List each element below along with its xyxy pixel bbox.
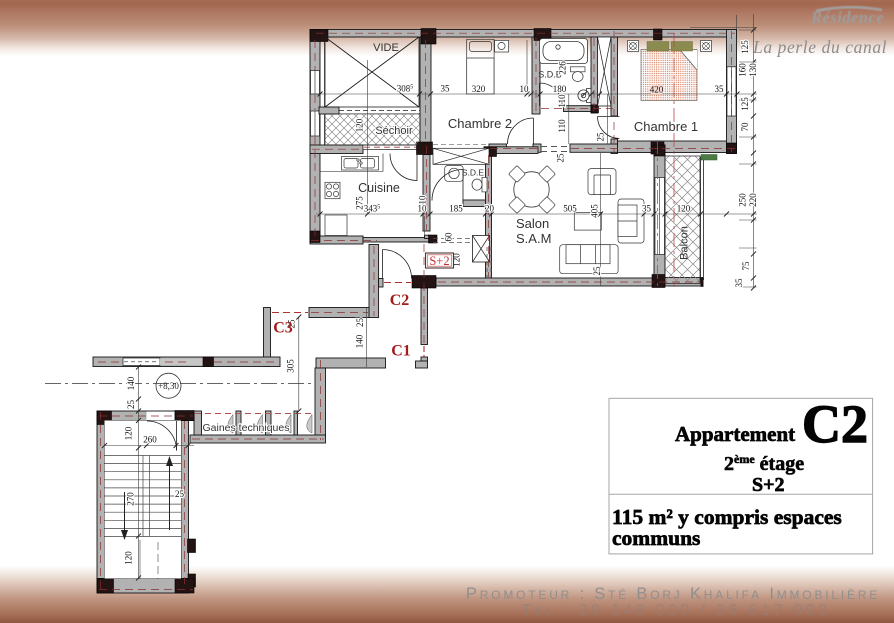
svg-text:C3: C3 bbox=[273, 320, 293, 337]
svg-text:communs: communs bbox=[612, 526, 700, 550]
svg-text:120: 120 bbox=[677, 204, 691, 214]
svg-text:Appartement: Appartement bbox=[675, 422, 795, 446]
svg-text:35: 35 bbox=[642, 204, 652, 214]
svg-text:25: 25 bbox=[126, 400, 136, 410]
svg-text:130: 130 bbox=[748, 63, 758, 77]
svg-text:250: 250 bbox=[738, 193, 748, 207]
svg-text:Salon: Salon bbox=[516, 216, 549, 231]
svg-text:S.D.E: S.D.E bbox=[462, 168, 485, 178]
svg-text:C2: C2 bbox=[802, 394, 868, 454]
svg-text:25: 25 bbox=[592, 266, 602, 276]
svg-text:S+2: S+2 bbox=[752, 474, 785, 496]
svg-text:25: 25 bbox=[355, 318, 365, 328]
svg-text:305: 305 bbox=[286, 359, 296, 373]
svg-text:S+2: S+2 bbox=[429, 254, 449, 268]
svg-text:110: 110 bbox=[557, 94, 567, 108]
svg-text:3085: 3085 bbox=[397, 84, 414, 94]
svg-text:VIDE: VIDE bbox=[373, 42, 399, 54]
svg-text:420: 420 bbox=[650, 85, 664, 95]
svg-text:140: 140 bbox=[355, 334, 365, 348]
svg-text:120: 120 bbox=[124, 551, 134, 565]
svg-text:3435: 3435 bbox=[364, 204, 381, 214]
svg-text:C2: C2 bbox=[390, 292, 410, 309]
svg-text:Chambre 1: Chambre 1 bbox=[634, 119, 698, 134]
svg-text:Balcon: Balcon bbox=[679, 226, 691, 260]
svg-text:140: 140 bbox=[126, 376, 136, 390]
svg-text:180: 180 bbox=[553, 84, 567, 94]
svg-text:110: 110 bbox=[557, 119, 567, 133]
svg-text:10: 10 bbox=[520, 84, 530, 94]
svg-text:Chambre 2: Chambre 2 bbox=[448, 116, 512, 131]
svg-text:60: 60 bbox=[444, 232, 454, 242]
svg-text:226: 226 bbox=[558, 61, 568, 75]
svg-text:Séchoir: Séchoir bbox=[375, 125, 413, 137]
svg-text:70: 70 bbox=[740, 122, 750, 132]
svg-text:120: 120 bbox=[355, 118, 365, 132]
svg-text:35: 35 bbox=[715, 84, 725, 94]
svg-text:25: 25 bbox=[596, 132, 606, 142]
svg-text:125: 125 bbox=[740, 40, 750, 54]
svg-text:Promoteur : Sté Borj Khalifa I: Promoteur : Sté Borj Khalifa Immobilière bbox=[466, 585, 880, 603]
svg-text:25: 25 bbox=[175, 489, 185, 499]
svg-text:270: 270 bbox=[126, 492, 136, 506]
svg-text:125: 125 bbox=[740, 97, 750, 111]
svg-text:S.A.M: S.A.M bbox=[516, 231, 551, 246]
svg-text:120: 120 bbox=[124, 426, 134, 440]
svg-text:Cuisine: Cuisine bbox=[358, 181, 400, 195]
svg-text:Tél : 29 148 000 / 26 617 000: Tél : 29 148 000 / 26 617 000 bbox=[522, 602, 831, 619]
svg-text:320: 320 bbox=[472, 84, 486, 94]
svg-text:10: 10 bbox=[418, 195, 428, 205]
svg-text:35: 35 bbox=[734, 278, 744, 288]
svg-text:La perle du canal: La perle du canal bbox=[752, 37, 887, 57]
svg-text:275: 275 bbox=[355, 196, 365, 210]
svg-text:25: 25 bbox=[556, 153, 566, 163]
svg-text:+8,30: +8,30 bbox=[158, 381, 179, 391]
svg-text:160: 160 bbox=[738, 63, 748, 77]
svg-text:35: 35 bbox=[441, 84, 451, 94]
svg-text:260: 260 bbox=[143, 435, 157, 445]
svg-text:20: 20 bbox=[485, 204, 495, 214]
svg-text:Gaines techniques: Gaines techniques bbox=[203, 422, 290, 434]
svg-text:C1: C1 bbox=[391, 343, 411, 360]
svg-text:505: 505 bbox=[563, 204, 577, 214]
svg-text:75: 75 bbox=[741, 261, 751, 271]
svg-text:185: 185 bbox=[449, 204, 463, 214]
svg-text:220: 220 bbox=[748, 193, 758, 207]
svg-text:405: 405 bbox=[590, 204, 600, 218]
